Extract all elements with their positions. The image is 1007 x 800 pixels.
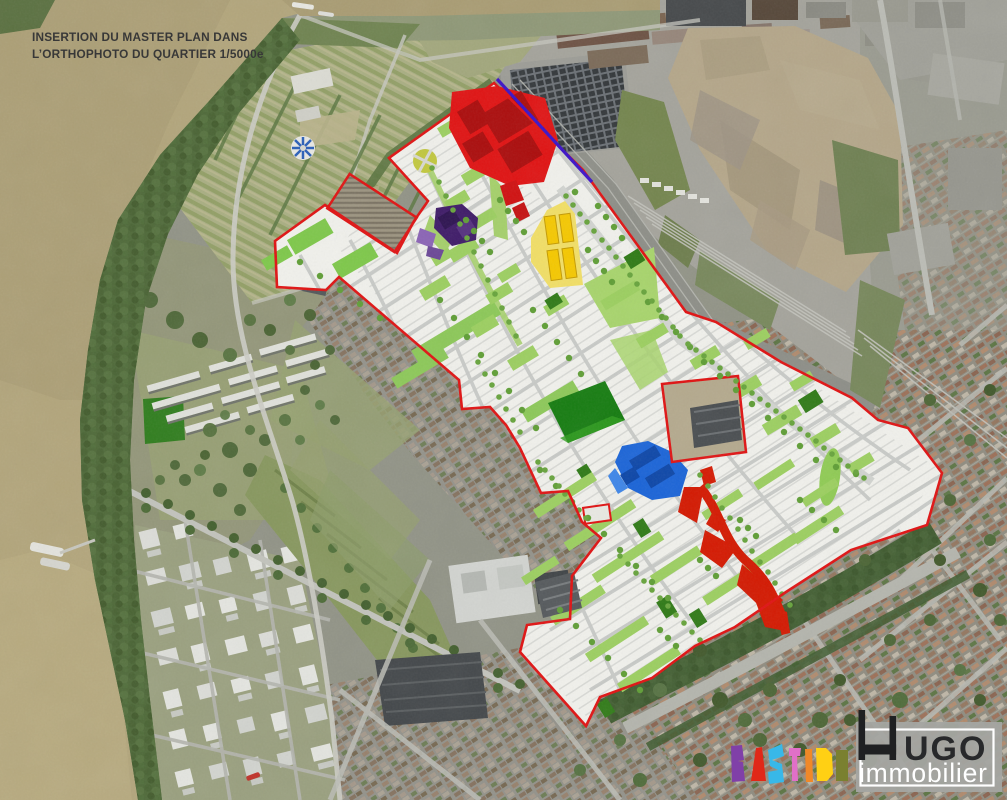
svg-text:L’ORTHOPHOTO DU QUARTIER 1/500: L’ORTHOPHOTO DU QUARTIER 1/5000e (32, 47, 264, 61)
svg-text:INSERTION DU MASTER PLAN DANS: INSERTION DU MASTER PLAN DANS (32, 30, 248, 44)
svg-text:immobilier: immobilier (859, 758, 988, 788)
